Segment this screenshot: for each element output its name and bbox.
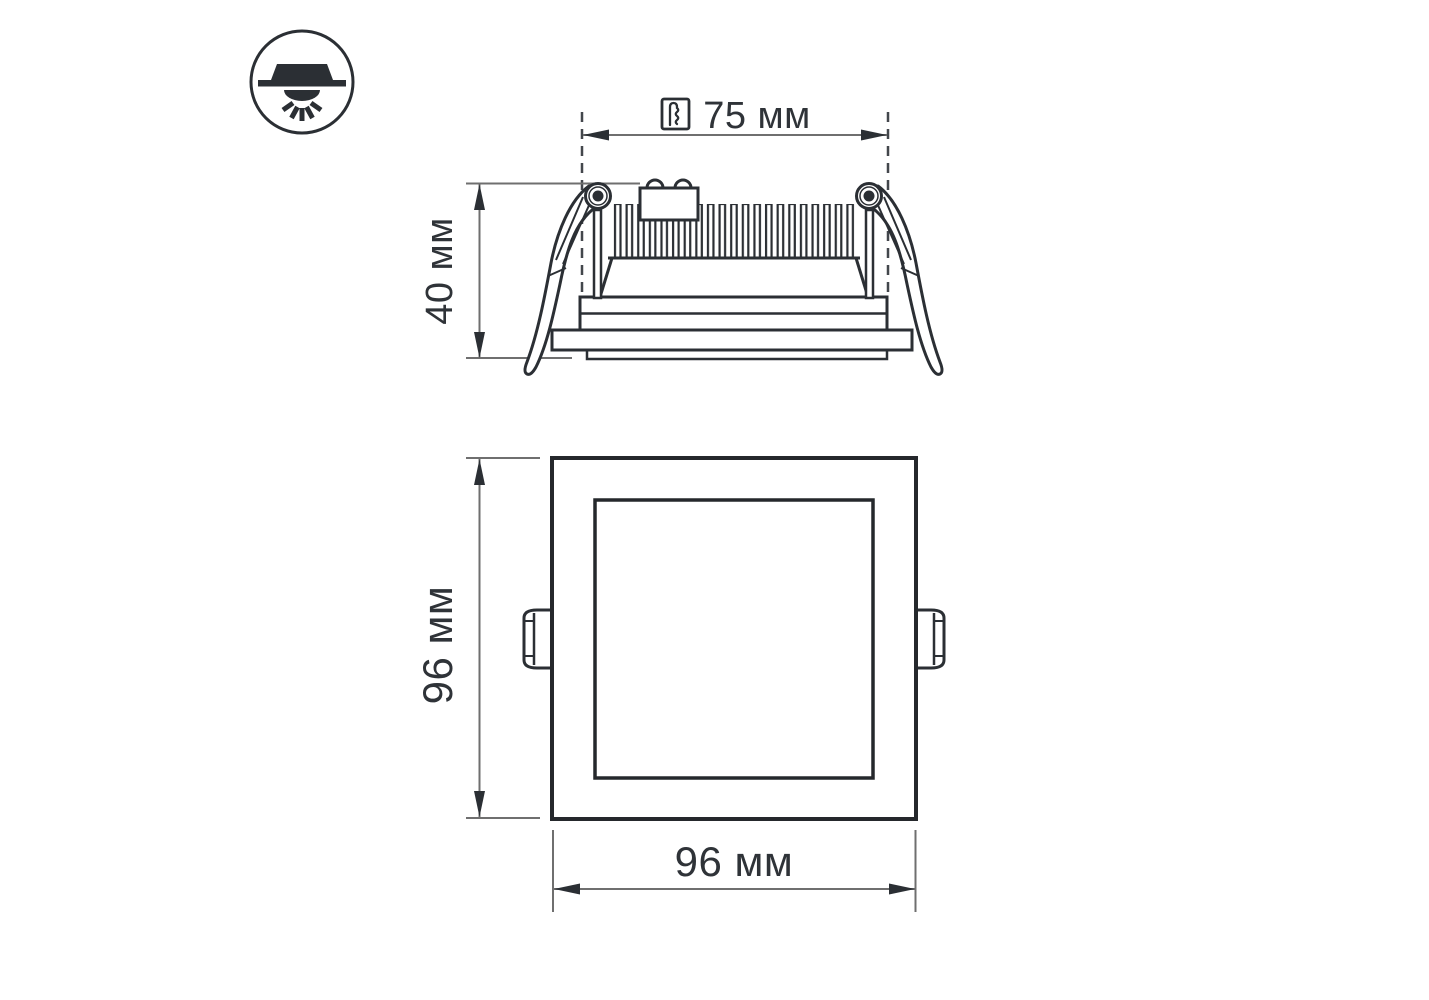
- arrow-up: [474, 184, 485, 210]
- hole-saw-icon: [662, 99, 689, 129]
- arrow-right: [889, 884, 915, 895]
- terminal-block: [640, 180, 698, 220]
- clip-post-right: [866, 210, 873, 298]
- technical-drawing-canvas: 75 мм 40 мм: [0, 0, 1429, 1000]
- cutout-extension-lines: [582, 112, 888, 292]
- arrow-left: [583, 130, 609, 141]
- arrow-down: [474, 332, 485, 358]
- side-view: 75 мм 40 мм: [419, 95, 942, 374]
- height-dimension-label: 40 мм: [419, 217, 461, 325]
- cutout-dimension: 75 мм: [583, 95, 887, 141]
- front-view: 96 мм 96 мм: [414, 458, 944, 912]
- clip-pivot-right: [857, 184, 882, 209]
- downlight-drawing: 75 мм 40 мм: [0, 0, 1429, 1000]
- arrow-right: [861, 130, 887, 141]
- front-height-dimension: 96 мм: [414, 458, 540, 818]
- trim-flange: [552, 330, 912, 350]
- glass-panel-outline: [595, 500, 873, 778]
- front-width-label: 96 мм: [675, 838, 794, 885]
- clip-pivot-left: [586, 184, 611, 209]
- cutout-dimension-label: 75 мм: [703, 95, 811, 137]
- recessed-downlight-icon: [251, 31, 353, 133]
- mount-tab-left: [524, 610, 553, 668]
- housing-slants: [600, 258, 868, 297]
- arrow-left: [554, 884, 580, 895]
- lamp-body: [552, 297, 912, 359]
- arrow-up: [474, 459, 485, 485]
- fixture-body-glyph: [271, 64, 333, 80]
- front-width-dimension: 96 мм: [553, 830, 916, 912]
- clip-post-left: [594, 210, 601, 298]
- arrow-down: [474, 791, 485, 817]
- front-height-label: 96 мм: [414, 586, 461, 705]
- mount-tab-right: [915, 610, 944, 668]
- ceiling-line-glyph: [258, 80, 346, 87]
